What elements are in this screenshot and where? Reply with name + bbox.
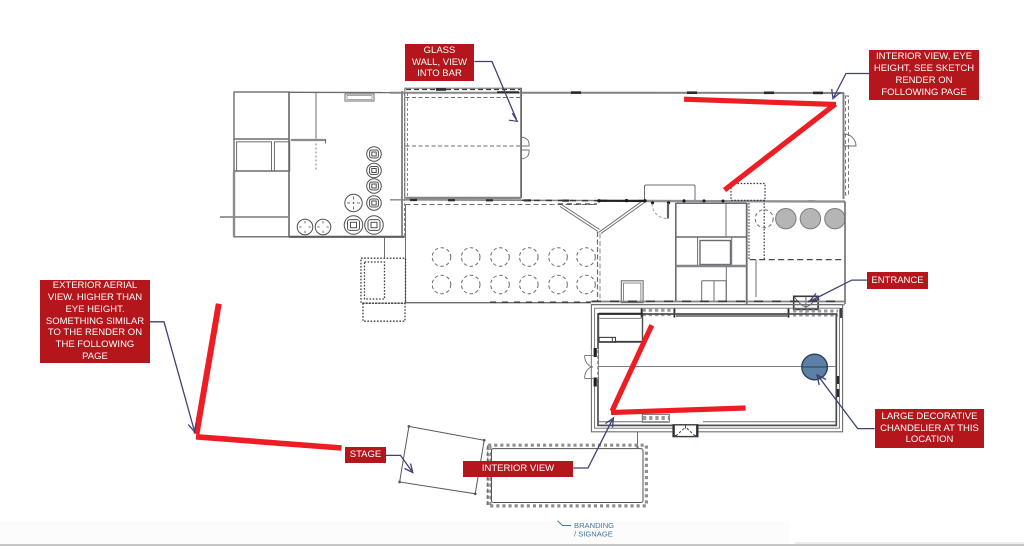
svg-text:/ SIGNAGE: / SIGNAGE — [574, 530, 613, 539]
